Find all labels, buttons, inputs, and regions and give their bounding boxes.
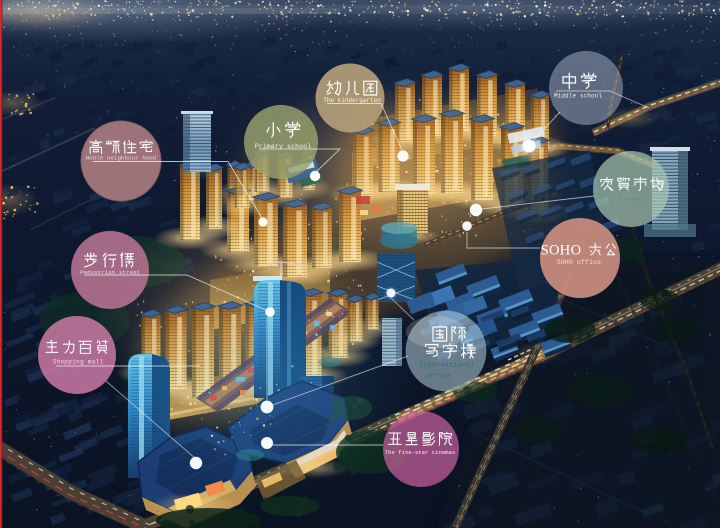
svg-text:office: office [425,372,451,379]
svg-text:Middle school: Middle school [554,93,602,100]
svg-text:SOHO office: SOHO office [557,259,601,266]
svg-text:International: International [419,361,474,368]
svg-text:Shopping mall: Shopping mall [53,359,104,366]
svg-text:Market: Market [619,196,645,203]
svg-text:The five-star cinemas: The five-star cinemas [385,449,456,456]
svg-text:Noble neighbour hood: Noble neighbour hood [86,155,157,162]
svg-text:SOHO: SOHO [541,243,582,259]
